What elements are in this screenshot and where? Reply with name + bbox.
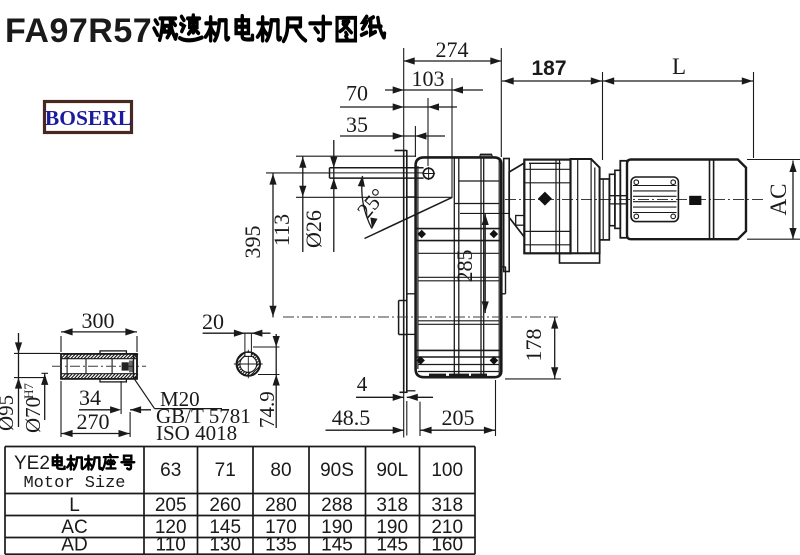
svg-text:274: 274: [436, 37, 469, 62]
svg-text:100: 100: [431, 460, 463, 481]
svg-text:AC: AC: [766, 184, 791, 216]
svg-text:178: 178: [521, 329, 546, 362]
svg-text:135: 135: [265, 535, 297, 555]
svg-text:395: 395: [240, 226, 265, 259]
svg-text:FA97R57: FA97R57: [5, 12, 152, 50]
svg-text:145: 145: [321, 535, 353, 555]
svg-text:AD: AD: [61, 535, 87, 555]
svg-text:288: 288: [321, 495, 353, 516]
svg-text:20: 20: [202, 309, 224, 334]
svg-text:L: L: [672, 54, 686, 79]
svg-text:Ø95: Ø95: [0, 395, 18, 431]
svg-text:113: 113: [269, 214, 294, 246]
svg-text:130: 130: [209, 535, 241, 555]
svg-text:71: 71: [215, 460, 236, 481]
svg-text:63: 63: [160, 460, 181, 481]
svg-text:34: 34: [79, 385, 101, 410]
svg-text:300: 300: [82, 308, 115, 333]
svg-text:205: 205: [155, 495, 187, 516]
svg-text:187: 187: [531, 57, 566, 80]
svg-text:H7: H7: [21, 383, 36, 399]
svg-text:285: 285: [452, 250, 477, 283]
svg-text:35: 35: [346, 112, 368, 137]
svg-text:70: 70: [346, 81, 368, 106]
svg-text:318: 318: [431, 495, 463, 516]
svg-text:Motor Size: Motor Size: [23, 474, 125, 493]
svg-text:280: 280: [265, 495, 297, 516]
svg-text:160: 160: [431, 535, 463, 555]
svg-text:318: 318: [376, 495, 408, 516]
svg-text:4: 4: [357, 372, 368, 396]
svg-text:145: 145: [376, 535, 408, 555]
svg-text:48.5: 48.5: [332, 405, 371, 430]
svg-text:74.9: 74.9: [255, 391, 279, 428]
svg-text:270: 270: [77, 409, 110, 434]
svg-text:Ø70: Ø70: [21, 397, 45, 433]
svg-text:BOSERL: BOSERL: [45, 106, 132, 130]
svg-text:L: L: [69, 495, 80, 516]
svg-text:103: 103: [412, 66, 445, 91]
svg-text:ISO 4018: ISO 4018: [156, 421, 237, 445]
svg-text:Ø26: Ø26: [301, 210, 326, 248]
svg-text:90L: 90L: [376, 460, 408, 481]
svg-text:80: 80: [270, 460, 291, 481]
svg-text:110: 110: [156, 535, 186, 555]
svg-text:90S: 90S: [320, 460, 354, 481]
svg-text:260: 260: [209, 495, 241, 516]
svg-text:205: 205: [442, 405, 475, 430]
svg-text:YE2: YE2: [14, 453, 50, 474]
